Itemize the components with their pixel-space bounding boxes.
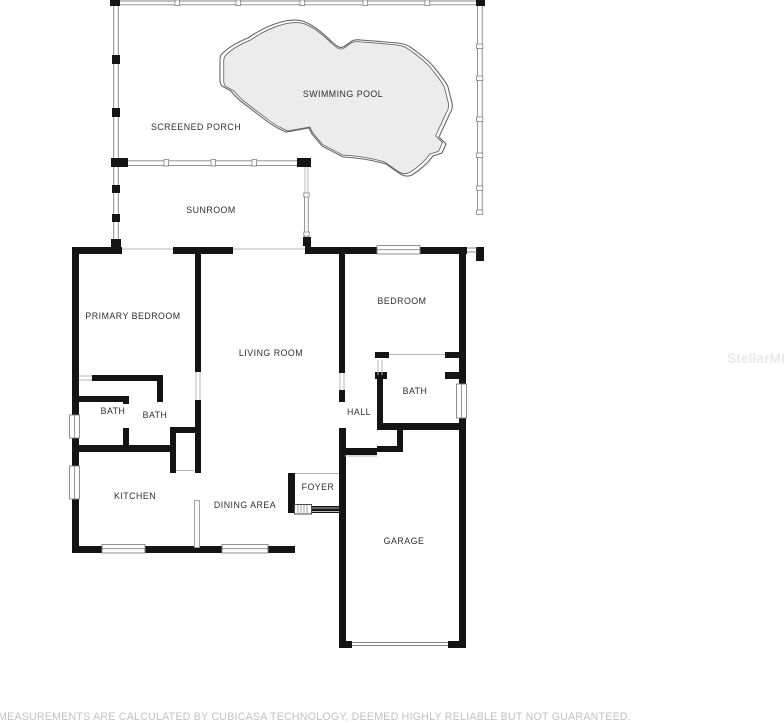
interior-walls — [72, 254, 466, 473]
room-label-bedroom: BEDROOM — [378, 296, 427, 306]
room-label-bath: BATH — [403, 386, 428, 396]
room-label-screened-porch: SCREENED PORCH — [151, 122, 241, 132]
kitchen-counter — [195, 501, 200, 548]
watermark: StellarMLS — [727, 351, 784, 366]
floor-plan-page: SWIMMING POOLSCREENED PORCHSUNROOMPRIMAR… — [0, 0, 784, 723]
room-label-bath: BATH — [143, 410, 168, 420]
room-label-bath: BATH — [101, 406, 126, 416]
room-label-swimming-pool: SWIMMING POOL — [303, 89, 383, 99]
room-label-kitchen: KITCHEN — [114, 491, 156, 501]
wall-openings — [79, 246, 445, 474]
room-label-primary-bedroom: PRIMARY BEDROOM — [85, 311, 180, 321]
room-label-hall: HALL — [347, 407, 371, 417]
floor-plan-svg: SWIMMING POOLSCREENED PORCHSUNROOMPRIMAR… — [0, 0, 784, 723]
room-label-dining-area: DINING AREA — [214, 500, 276, 510]
room-label-living-room: LIVING ROOM — [239, 348, 303, 358]
bedroom-window — [377, 246, 420, 255]
kitchen-window — [102, 545, 145, 554]
disclaimer-text: MEASUREMENTS ARE CALCULATED BY CUBICASA … — [0, 711, 784, 723]
dining-window — [222, 545, 268, 554]
room-label-garage: GARAGE — [384, 536, 425, 546]
room-label-foyer: FOYER — [302, 482, 335, 492]
bath-window — [457, 384, 467, 418]
room-label-sunroom: SUNROOM — [186, 205, 235, 215]
west-window-1 — [70, 415, 80, 438]
west-window-2 — [70, 466, 80, 499]
garage-door — [352, 641, 448, 650]
